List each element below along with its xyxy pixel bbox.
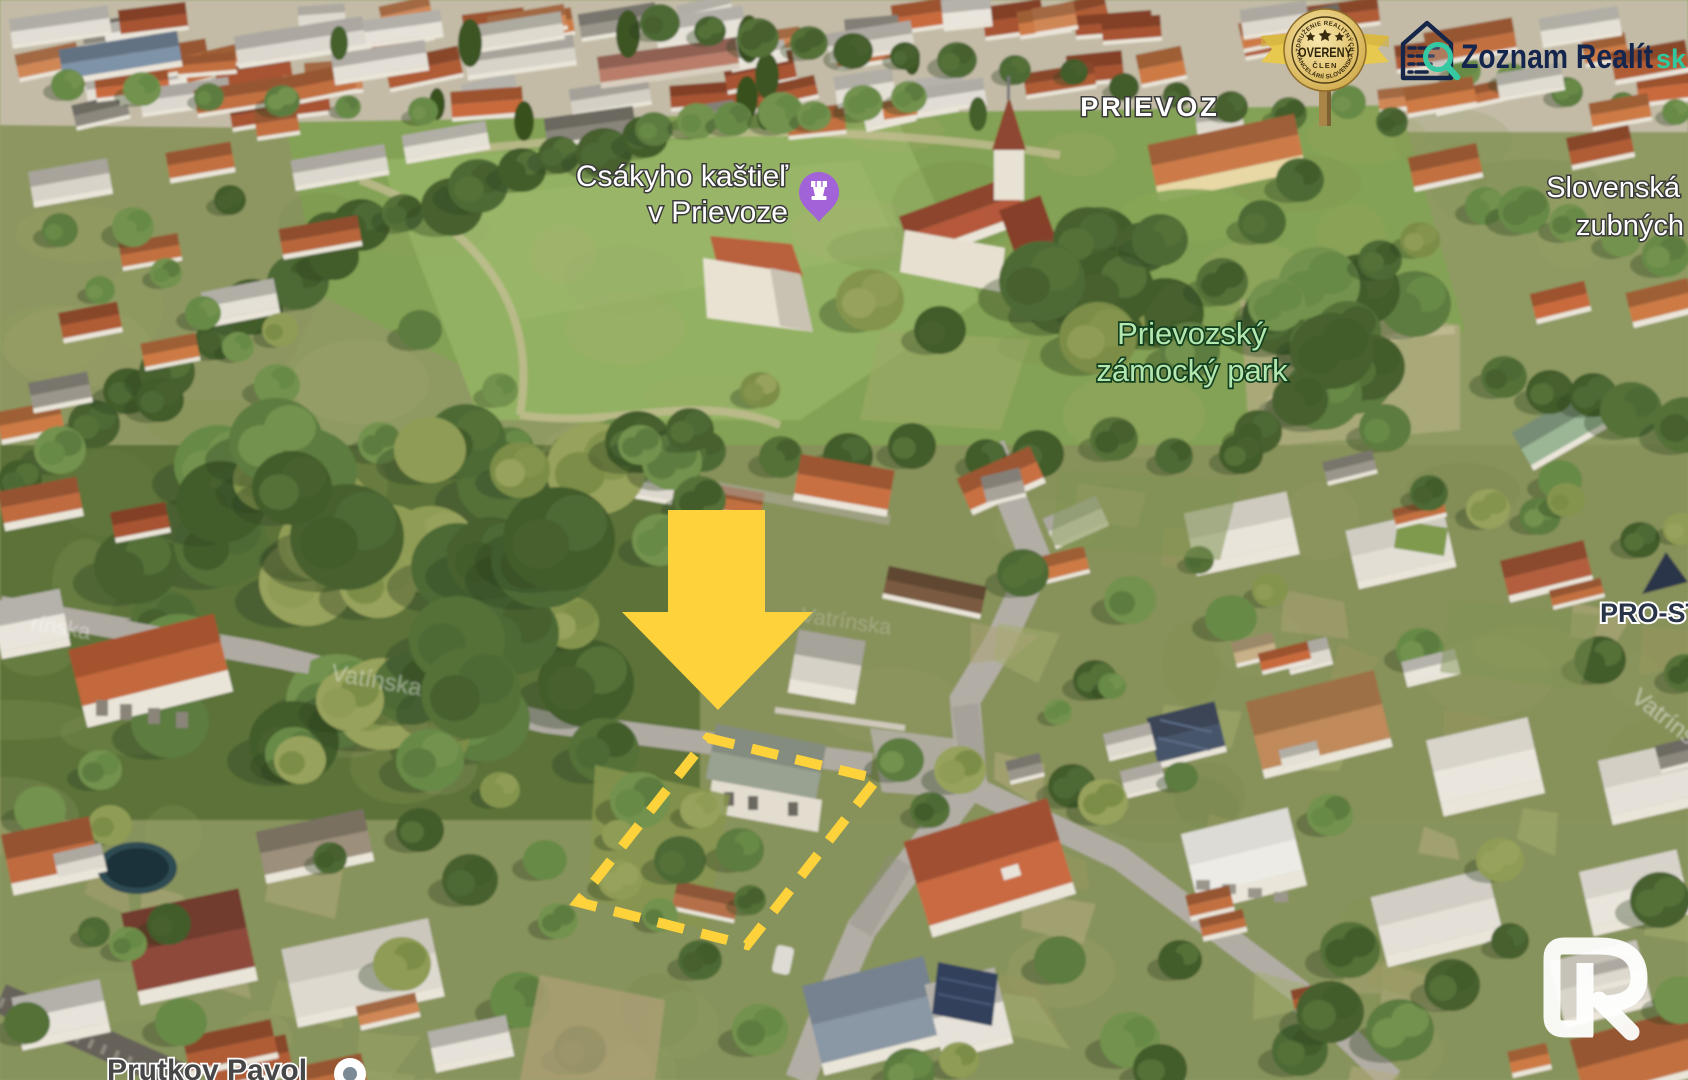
svg-text:PRO-STA: PRO-STA <box>1600 598 1688 628</box>
svg-text:ČLEN: ČLEN <box>1312 61 1337 70</box>
svg-text:Slovenská: Slovenská <box>1546 172 1681 204</box>
svg-text:OVERENÝ: OVERENÝ <box>1298 43 1353 60</box>
svg-text:zámocký park: zámocký park <box>1096 353 1288 388</box>
svg-text:zubných: zubných <box>1576 210 1684 242</box>
svg-text:Prutkov Pavol: Prutkov Pavol <box>107 1054 307 1080</box>
svg-text:PRIEVOZ: PRIEVOZ <box>1080 92 1220 122</box>
svg-text:Zoznam Realít: Zoznam Realít <box>1461 38 1653 76</box>
svg-text:v Prievoze: v Prievoze <box>648 196 788 229</box>
svg-text:Prievozský: Prievozský <box>1117 316 1267 351</box>
svg-text:Csákyho kaštieľ: Csákyho kaštieľ <box>576 160 789 193</box>
svg-text:sk: sk <box>1656 44 1687 74</box>
